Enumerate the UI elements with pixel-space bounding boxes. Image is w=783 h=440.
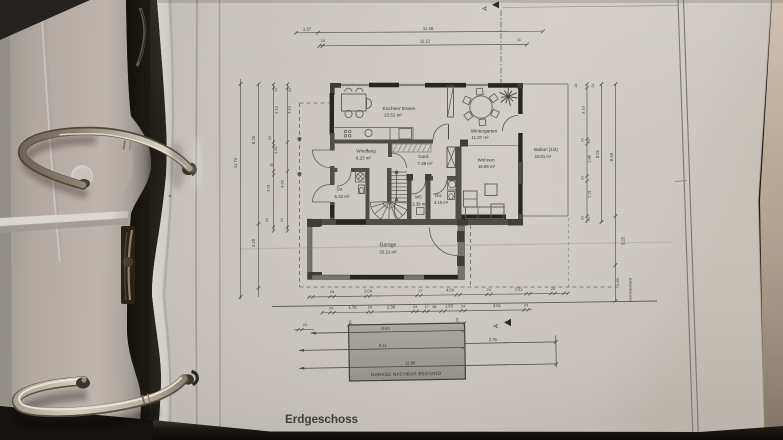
svg-text:8.63: 8.63 [381,326,390,331]
svg-text:24: 24 [321,39,325,43]
svg-text:11: 11 [517,38,521,42]
svg-text:24: 24 [413,305,417,309]
svg-text:24: 24 [288,88,292,92]
svg-text:8.49: 8.49 [609,152,614,161]
svg-text:3.04: 3.04 [364,289,373,294]
svg-text:1.76: 1.76 [349,305,358,310]
svg-text:3.51: 3.51 [515,286,524,291]
svg-text:3.01: 3.01 [266,183,271,192]
svg-text:8.25: 8.25 [251,135,256,144]
svg-text:1.50: 1.50 [615,277,620,286]
svg-text:5.43 m²: 5.43 m² [335,194,350,199]
svg-text:24: 24 [487,288,491,292]
svg-text:24: 24 [265,218,269,222]
svg-text:17: 17 [418,289,422,293]
svg-text:24: 24 [524,304,528,308]
svg-text:3.13: 3.13 [287,105,292,114]
svg-text:17: 17 [425,305,429,309]
svg-text:A: A [482,6,489,11]
svg-text:3.51: 3.51 [493,303,502,308]
svg-text:3.75: 3.75 [489,337,498,342]
svg-text:3.25: 3.25 [621,236,626,245]
svg-text:24: 24 [274,88,278,92]
svg-text:24: 24 [461,304,465,308]
svg-text:11.37 m²: 11.37 m² [471,135,489,140]
svg-text:24: 24 [551,287,555,291]
svg-text:24: 24 [581,138,585,142]
svg-text:11.74: 11.74 [233,157,238,168]
svg-text:3.49: 3.49 [251,238,256,247]
svg-text:24: 24 [587,217,591,221]
svg-text:Gard.: Gard. [418,154,430,159]
svg-text:2.51: 2.51 [587,189,592,198]
svg-text:Garage: Garage [380,243,397,249]
svg-text:WC: WC [415,195,422,200]
svg-text:4.04: 4.04 [446,287,455,292]
svg-text:Kochen/ Essen: Kochen/ Essen [383,106,416,112]
svg-text:16.95 m²: 16.95 m² [478,164,496,169]
svg-text:9.11: 9.11 [379,343,388,348]
svg-text:24: 24 [268,136,272,140]
svg-text:88: 88 [433,305,437,309]
svg-text:3.13: 3.13 [581,105,586,114]
svg-text:1.63: 1.63 [445,304,454,309]
svg-text:10.01 m²: 10.01 m² [535,154,552,159]
svg-text:1.88: 1.88 [587,154,592,163]
svg-text:24: 24 [368,306,372,310]
svg-text:2.38: 2.38 [387,304,396,309]
svg-text:11: 11 [270,163,274,167]
svg-text:24: 24 [455,318,459,322]
svg-text:24: 24 [574,84,578,88]
svg-text:24: 24 [587,139,591,143]
svg-text:3.13: 3.13 [274,105,279,114]
svg-text:24: 24 [303,323,307,327]
svg-text:7.48 m²: 7.48 m² [418,161,433,166]
svg-text:4.10 m²: 4.10 m² [434,200,449,205]
svg-text:Balkon (1/2): Balkon (1/2) [534,147,558,152]
svg-text:Grenzabstand: Grenzabstand [628,278,633,302]
svg-text:11.12: 11.12 [420,39,431,44]
svg-text:Wintergarten: Wintergarten [471,129,498,134]
svg-text:2.38 m²: 2.38 m² [412,202,427,207]
svg-text:23.51 m²: 23.51 m² [384,113,402,118]
svg-text:Windfang: Windfang [356,149,376,154]
svg-text:1.37: 1.37 [303,27,312,32]
svg-text:24: 24 [329,306,333,310]
svg-text:24: 24 [591,84,595,88]
svg-text:Erdgeschoss: Erdgeschoss [285,412,359,426]
svg-text:12.86: 12.86 [405,360,416,365]
svg-text:11.48: 11.48 [423,26,434,31]
svg-text:24: 24 [330,290,334,294]
svg-text:4.63: 4.63 [280,179,285,188]
svg-text:Wohnen: Wohnen [477,158,494,163]
svg-text:Du.: Du. [337,187,344,192]
svg-text:25.21 m²: 25.21 m² [379,250,397,255]
svg-text:6.23 m²: 6.23 m² [356,155,371,160]
svg-text:8.01: 8.01 [595,149,600,158]
svg-text:1.51: 1.51 [273,145,278,154]
svg-text:24: 24 [280,218,284,222]
svg-text:24: 24 [581,176,585,180]
svg-text:24: 24 [581,216,585,220]
